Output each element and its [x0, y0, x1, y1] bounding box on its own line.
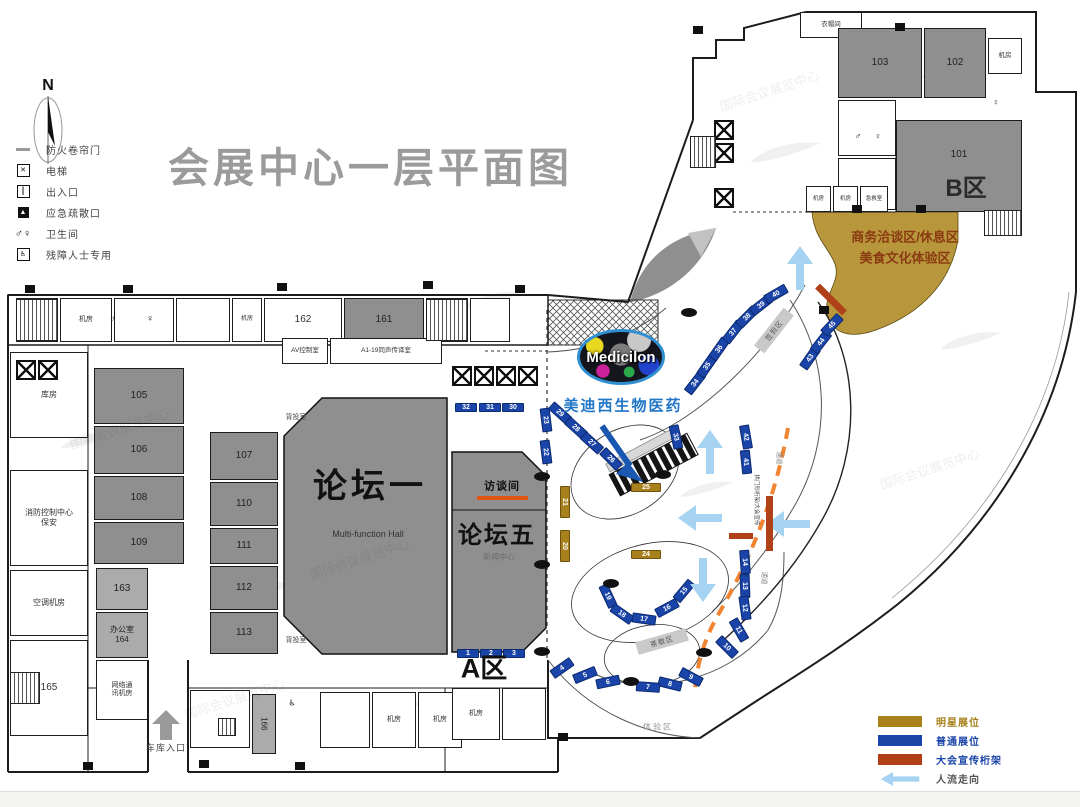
room-label: 网络通 讯机房 — [112, 682, 133, 699]
label-论坛一: 论坛一 — [313, 467, 427, 506]
room-A1-19同声传译室: A1-19同声传译室 — [330, 338, 442, 364]
legend-booth-types: 明星展位普通展位大会宣传桁架人流走向 — [878, 712, 1002, 788]
exit-marker — [693, 26, 703, 34]
room-AV控制室: AV控制室 — [282, 338, 328, 364]
exit-marker — [123, 285, 133, 293]
booth-30: 30 — [502, 403, 524, 412]
room-label: 机房 — [469, 710, 483, 718]
label-♀: ♀ — [146, 313, 154, 325]
room-label: 机房 — [840, 196, 851, 203]
legend-label: 防火卷帘门 — [46, 142, 101, 157]
room-label: AV控制室 — [291, 347, 319, 355]
room-label: 机房 — [241, 316, 253, 323]
compass-north-label: N — [42, 77, 54, 95]
promo-truss-bar — [766, 496, 773, 551]
booth-legend-label: 普通展位 — [936, 733, 980, 748]
room-机房: 机房 — [806, 186, 831, 212]
booth-legend-row-3: 人流走向 — [878, 769, 1002, 788]
exit-marker — [916, 205, 926, 213]
room-cell — [320, 692, 370, 748]
entrance-icon: ║ — [14, 185, 32, 198]
room-label: 101 — [951, 149, 968, 161]
room-机房: 机房 — [232, 298, 262, 342]
legend-row-5: ♿残障人士专用 — [14, 244, 112, 265]
exit-marker — [25, 285, 35, 293]
floor-plan-canvas: 会展中心一层平面图 N 防火卷帘门✕电梯║出入口▲应急疏散口♂♀卫生间♿残障人士… — [0, 0, 1080, 807]
stairs-icon — [218, 718, 236, 736]
label-拱门形桁架/大会宣传: 拱门形桁架/大会宣传 — [753, 474, 759, 525]
label-Multi-func: Multi-function Hall — [332, 529, 404, 539]
room-110: 110 — [210, 482, 278, 526]
room-161: 161 — [344, 298, 424, 342]
exit-marker — [515, 285, 525, 293]
elevator-icon — [518, 366, 538, 386]
room-102: 102 — [924, 28, 986, 98]
booth-24: 24 — [631, 550, 661, 559]
room-label: 机房 — [433, 716, 447, 724]
line-glyph — [16, 148, 30, 151]
elevator-icon — [474, 366, 494, 386]
room-166: 166 — [252, 694, 276, 754]
room-cell — [176, 298, 230, 342]
elevator-icon — [714, 120, 734, 140]
elevator-icon — [714, 188, 734, 208]
label-B区: B区 — [945, 175, 986, 203]
label-♀: ♀ — [993, 97, 1000, 107]
exit-marker — [295, 762, 305, 770]
room-113: 113 — [210, 612, 278, 654]
legend-row-2: ║出入口 — [14, 181, 112, 202]
exit-marker — [423, 281, 433, 289]
wheelchair-icon: ♿ — [14, 248, 32, 261]
legend-symbols: 防火卷帘门✕电梯║出入口▲应急疏散口♂♀卫生间♿残障人士专用 — [14, 139, 112, 265]
emergency-exit-icon: ▲ — [14, 207, 32, 218]
fire-shutter-icon — [14, 148, 32, 151]
label-♿: ♿ — [288, 698, 295, 707]
legend-swatch — [878, 754, 922, 765]
label-通道: 通道 — [775, 452, 782, 465]
room-label: 106 — [131, 444, 148, 456]
label-背投室: 背投室 — [286, 637, 307, 645]
booth-legend-label: 人流走向 — [936, 771, 980, 786]
room-label: 111 — [236, 540, 251, 552]
legend-swatch — [878, 716, 922, 727]
pillar — [681, 308, 697, 317]
exit-marker — [819, 306, 829, 314]
room-label: 163 — [114, 583, 131, 595]
room-cell — [502, 688, 546, 740]
label-车库入口: 车库入口 — [146, 743, 186, 753]
label-商务洽谈区/休息区: 商务洽谈区/休息区 — [851, 231, 959, 246]
room-办公室164: 办公室 164 — [96, 612, 148, 658]
room-cell — [114, 298, 174, 342]
label-背投室: 背投室 — [286, 414, 307, 422]
exit-marker — [277, 283, 287, 291]
exit-marker — [199, 760, 209, 768]
room-107: 107 — [210, 432, 278, 480]
label-新闻中心: 新闻中心 — [483, 552, 515, 561]
room-label: 空调机房 — [33, 598, 65, 608]
booth-25: 25 — [631, 483, 661, 492]
room-label: 110 — [236, 498, 252, 510]
room-109: 109 — [94, 522, 184, 564]
pillar — [534, 560, 550, 569]
medicilon-logo: Medicilon — [577, 329, 665, 385]
flow-arrow — [787, 246, 813, 290]
label-体验区: 体验区 — [643, 722, 673, 731]
room-label: 急救室 — [866, 196, 883, 203]
room-机房: 机房 — [372, 692, 416, 748]
elevator-icon — [16, 360, 36, 380]
pillar — [534, 472, 550, 481]
label-美迪西生物医药: 美迪西生物医药 — [563, 397, 682, 414]
label-♂: ♂ — [855, 131, 862, 141]
booth-legend-row-2: 大会宣传桁架 — [878, 750, 1002, 769]
pillar — [534, 647, 550, 656]
flow-direction-arrow-icon — [878, 772, 922, 786]
legend-row-4: ♂♀卫生间 — [14, 223, 112, 244]
stairs-icon — [10, 672, 40, 704]
room-label: 机房 — [999, 52, 1012, 60]
flow-arrow — [678, 505, 722, 531]
room-label: 105 — [131, 390, 148, 402]
elevator-icon — [714, 143, 734, 163]
flow-arrow — [697, 430, 723, 474]
room-label: A1-19同声传译室 — [361, 347, 411, 355]
pillar — [696, 648, 712, 657]
stairs-icon — [426, 299, 468, 341]
booth-7: 7 — [636, 681, 661, 693]
room-空调机房: 空调机房 — [10, 570, 88, 636]
room-label: 办公室 164 — [110, 625, 134, 644]
room-机房: 机房 — [452, 688, 500, 740]
glyph: ║ — [17, 185, 30, 198]
page-title: 会展中心一层平面图 — [168, 134, 573, 194]
legend-row-3: ▲应急疏散口 — [14, 202, 112, 223]
stairs-icon — [16, 299, 58, 341]
elevator-icon — [38, 360, 58, 380]
room-label: 108 — [131, 492, 148, 504]
glyph: ▲ — [18, 207, 29, 218]
booth-legend-label: 明星展位 — [936, 714, 980, 729]
booth-32: 32 — [455, 403, 477, 412]
stairs-icon — [690, 136, 716, 168]
exit-marker — [83, 762, 93, 770]
booth-20: 20 — [560, 530, 570, 562]
room-162: 162 — [264, 298, 342, 342]
room-label: 161 — [376, 314, 393, 326]
room-cell — [838, 100, 896, 156]
elevator-icon — [452, 366, 472, 386]
room-label: 109 — [131, 537, 148, 549]
exit-marker — [895, 23, 905, 31]
room-label: 165 — [41, 682, 58, 694]
room-label: 消防控制中心 保安 — [25, 508, 73, 527]
room-网络通讯机房: 网络通 讯机房 — [96, 660, 148, 720]
legend-label: 卫生间 — [46, 226, 79, 241]
booth-14: 14 — [739, 550, 751, 575]
pillar — [603, 579, 619, 588]
room-cell — [470, 298, 510, 342]
room-label: 102 — [947, 57, 964, 69]
label-论坛五: 论坛五 — [458, 522, 536, 550]
label-♀: ♀ — [875, 131, 882, 141]
label-♂: ♂ — [109, 313, 117, 325]
room-label: 107 — [236, 450, 253, 462]
label-A区: A区 — [461, 653, 508, 684]
room-label: 机房 — [79, 316, 93, 324]
elevator-icon — [496, 366, 516, 386]
legend-label: 电梯 — [46, 163, 68, 178]
pillar — [655, 470, 671, 479]
legend-label: 残障人士专用 — [46, 247, 112, 262]
interview-room-underline — [477, 496, 528, 500]
glyph: ♿ — [17, 248, 30, 261]
booth-legend-label: 大会宣传桁架 — [936, 752, 1002, 767]
garage-entrance-arrow-icon — [150, 710, 182, 742]
room-163: 163 — [96, 568, 148, 610]
legend-label: 应急疏散口 — [46, 205, 101, 220]
booth-13: 13 — [740, 574, 751, 598]
exit-marker — [558, 733, 568, 741]
booth-legend-row-1: 普通展位 — [878, 731, 1002, 750]
medicilon-logo-text: Medicilon — [586, 349, 655, 366]
room-label: 166 — [259, 717, 269, 730]
room-label: 112 — [236, 582, 252, 594]
room-label: 库房 — [41, 390, 57, 400]
room-消防控制中心保安: 消防控制中心 保安 — [10, 470, 88, 566]
room-103: 103 — [838, 28, 922, 98]
booth-legend-row-0: 明星展位 — [878, 712, 1002, 731]
booth-31: 31 — [479, 403, 501, 412]
room-label: 103 — [872, 57, 889, 69]
promo-truss-bar — [729, 533, 753, 539]
toilet-icon: ♂♀ — [14, 228, 32, 240]
room-label: 机房 — [813, 196, 824, 203]
booth-21: 21 — [560, 486, 570, 518]
room-108: 108 — [94, 476, 184, 520]
room-112: 112 — [210, 566, 278, 610]
stairs-icon — [984, 210, 1022, 236]
pillar — [623, 677, 639, 686]
legend-row-1: ✕电梯 — [14, 160, 112, 181]
exit-marker — [852, 205, 862, 213]
elevator-icon: ✕ — [14, 164, 32, 177]
glyph: ✕ — [17, 164, 30, 177]
flow-arrow — [690, 558, 716, 602]
room-机房: 机房 — [60, 298, 112, 342]
room-急救室: 急救室 — [860, 186, 888, 212]
room-label: 机房 — [387, 716, 401, 724]
label-通道: 通道 — [760, 572, 767, 585]
label-美食文化体验区: 美食文化体验区 — [859, 252, 950, 267]
room-111: 111 — [210, 528, 278, 564]
legend-swatch — [878, 735, 922, 746]
label-访谈间: 访谈间 — [484, 481, 520, 494]
room-label: 113 — [236, 627, 252, 639]
bottom-band — [0, 791, 1080, 807]
legend-row-0: 防火卷帘门 — [14, 139, 112, 160]
room-机房: 机房 — [988, 38, 1022, 74]
room-label: 162 — [295, 314, 312, 326]
glyph: ♂♀ — [15, 228, 32, 240]
legend-label: 出入口 — [46, 184, 79, 199]
